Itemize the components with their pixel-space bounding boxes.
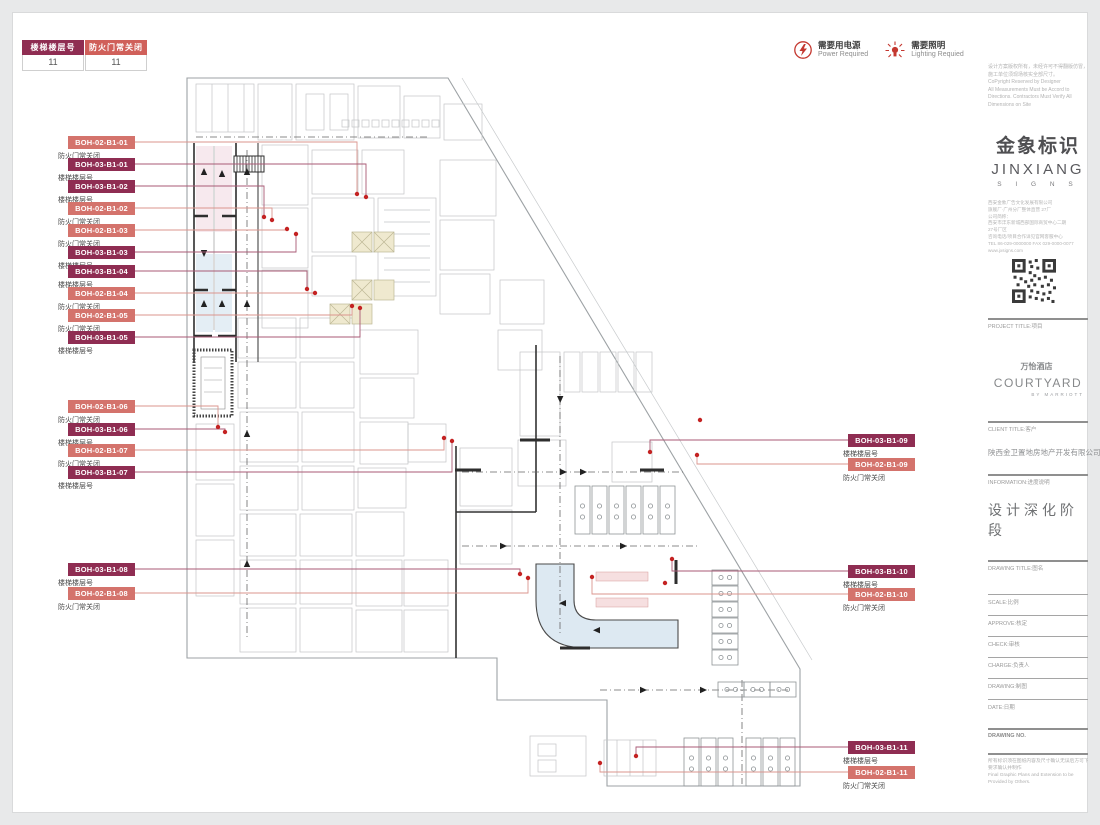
power-icon: [793, 40, 813, 60]
label-code: BOH-02-B1-08: [68, 587, 135, 600]
legend-power-en: Power Required: [818, 50, 868, 59]
label-caption: 防火门常关闭: [843, 473, 938, 483]
legend-power-zh: 需要用电源: [818, 40, 868, 50]
legend-value-stair: 11: [22, 55, 84, 71]
text-line: 旗舰厂·广州分厂整体直营 27厂: [988, 207, 1088, 214]
label-caption: 防火门常关闭: [843, 781, 938, 791]
label-code: BOH-03-B1-11: [848, 741, 915, 754]
text-line: 公司简称：: [988, 214, 1088, 221]
legend-header-door: 防火门常关闭: [85, 40, 147, 55]
label-code: BOH-03-B1-04: [68, 265, 135, 278]
label-code: BOH-03-B1-06: [68, 423, 135, 436]
text-line: Dimensions on Site: [988, 102, 1088, 110]
label-code: BOH-03-B1-02: [68, 180, 135, 193]
boh-label-boh-02-b1-08: BOH-02-B1-08防火门常关闭: [68, 587, 158, 612]
lighting-icon: [884, 40, 906, 60]
text-line: TEL 86-029-0000000 FAX 029-0000-0077: [988, 241, 1088, 248]
qr-code: [1012, 259, 1056, 303]
text-line: Directions. Contractors Must Verify All: [988, 94, 1088, 102]
text-line: 咨询电话/项目合作详见官网客服中心: [988, 234, 1088, 241]
legend-lighting: 需要照明 Lighting Requied: [884, 40, 964, 60]
design-stage: 设计深化阶段: [988, 500, 1088, 540]
text-line: 西安市沣东新城西部国际商贸中心二期: [988, 220, 1088, 227]
titleblock-fields: SCALE:比例APPROVE:核定CHECK:审核CHARGE:负责人DRAW…: [988, 594, 1088, 720]
company-logo-en: JINXIANG: [988, 161, 1088, 178]
boh-label-boh-03-b1-11: BOH-03-B1-11楼梯楼层号: [848, 741, 938, 766]
label-code: BOH-02-B1-09: [848, 458, 915, 471]
boh-label-boh-02-b1-04: BOH-02-B1-04防火门常关闭: [68, 287, 158, 312]
field-check: CHECK:审核: [988, 636, 1088, 657]
boh-label-boh-03-b1-08: BOH-03-B1-08楼梯楼层号: [68, 563, 158, 588]
label-code: BOH-03-B1-09: [848, 434, 915, 447]
project-logo-en: COURTYARD: [994, 376, 1082, 390]
text-line: Final Graphic Plans and Extension to be: [988, 772, 1088, 779]
project-title-label: PROJECT TITLE:项目: [988, 318, 1088, 330]
title-block: 设计方案版权所有，未经许可不得翻版仿冒，施工单位须现场核实全部尺寸。CoPyri…: [988, 64, 1088, 786]
text-line: CoPyright Reserved by Designer: [988, 79, 1088, 87]
label-caption: 楼梯楼层号: [58, 481, 158, 491]
field-scale: SCALE:比例: [988, 594, 1088, 615]
boh-label-boh-03-b1-09: BOH-03-B1-09楼梯楼层号: [848, 434, 938, 459]
company-logo-sub: S I G N S: [988, 181, 1088, 188]
text-line: 西安金象广告文化发展有限公司: [988, 200, 1088, 207]
label-caption: 楼梯楼层号: [58, 346, 158, 356]
label-code: BOH-03-B1-05: [68, 331, 135, 344]
boh-label-boh-02-b1-10: BOH-02-B1-10防火门常关闭: [848, 588, 938, 613]
text-line: 要求确认并制作: [988, 765, 1088, 772]
label-caption: 楼梯楼层号: [843, 449, 938, 459]
label-code: BOH-03-B1-07: [68, 466, 135, 479]
label-caption: 防火门常关闭: [843, 603, 938, 613]
boh-label-boh-03-b1-05: BOH-03-B1-05楼梯楼层号: [68, 331, 158, 356]
text-line: 施工单位须现场核实全部尺寸。: [988, 72, 1088, 80]
label-code: BOH-02-B1-02: [68, 202, 135, 215]
field-drawing: DRAWING:制图: [988, 678, 1088, 699]
text-line: All Measurements Must be Accord to: [988, 87, 1088, 95]
project-logo-sub: BY MARRIOTT: [988, 392, 1084, 397]
legend-header-stair: 楼梯楼层号: [22, 40, 84, 55]
legend-col-stair: 楼梯楼层号 11: [22, 40, 84, 71]
boh-label-boh-02-b1-02: BOH-02-B1-02防火门常关闭: [68, 202, 158, 227]
field-charge: CHARGE:负责人: [988, 657, 1088, 678]
label-code: BOH-02-B1-03: [68, 224, 135, 237]
label-code: BOH-03-B1-03: [68, 246, 135, 259]
text-line: Provided by Others.: [988, 779, 1088, 786]
text-line: 设计方案版权所有，未经许可不得翻版仿冒，: [988, 64, 1088, 72]
information-label: INFORMATION:进度说明: [988, 474, 1088, 486]
label-caption: 防火门常关闭: [58, 602, 158, 612]
label-code: BOH-02-B1-11: [848, 766, 915, 779]
legend-power: 需要用电源 Power Required: [793, 40, 868, 60]
company-info: 西安金象广告文化发展有限公司旗舰厂·广州分厂整体直营 27厂公司简称：西安市沣东…: [988, 200, 1088, 254]
boh-label-boh-03-b1-10: BOH-03-B1-10楼梯楼层号: [848, 565, 938, 590]
legend-col-door: 防火门常关闭 11: [85, 40, 147, 71]
boh-label-boh-03-b1-01: BOH-03-B1-01楼梯楼层号: [68, 158, 158, 183]
legend-value-door: 11: [85, 55, 147, 71]
legend-lighting-zh: 需要照明: [911, 40, 964, 50]
production-note: 所有标识须在图纸内容及尺寸确认无误后方可下单要求确认并制作Final Graph…: [988, 753, 1088, 786]
boh-label-boh-02-b1-09: BOH-02-B1-09防火门常关闭: [848, 458, 938, 483]
boh-label-boh-02-b1-11: BOH-02-B1-11防火门常关闭: [848, 766, 938, 791]
project-logo-zh: 万怡酒店: [1021, 361, 1053, 372]
label-code: BOH-02-B1-04: [68, 287, 135, 300]
boh-label-boh-03-b1-02: BOH-03-B1-02楼梯楼层号: [68, 180, 158, 205]
boh-label-boh-02-b1-07: BOH-02-B1-07防火门常关闭: [68, 444, 158, 469]
text-line: 27号厂区: [988, 227, 1088, 234]
text-line: 所有标识须在图纸内容及尺寸确认无误后方可下单: [988, 758, 1088, 765]
boh-label-boh-02-b1-03: BOH-02-B1-03防火门常关闭: [68, 224, 158, 249]
legend-table: 楼梯楼层号 11 防火门常关闭 11: [22, 40, 148, 71]
boh-label-boh-02-b1-05: BOH-02-B1-05防火门常关闭: [68, 309, 158, 334]
client-name: 陕西金卫置地房地产开发有限公司: [988, 447, 1088, 458]
label-caption: 楼梯楼层号: [58, 578, 158, 588]
company-logo-zh: 金象标识: [988, 131, 1088, 158]
label-code: BOH-02-B1-07: [68, 444, 135, 457]
drawing-sheet: [12, 12, 1088, 813]
copyright-note: 设计方案版权所有，未经许可不得翻版仿冒，施工单位须现场核实全部尺寸。CoPyri…: [988, 64, 1088, 109]
project-logo: 万怡酒店COURTYARD BY MARRIOTT: [988, 356, 1088, 397]
boh-label-boh-02-b1-06: BOH-02-B1-06防火门常关闭: [68, 400, 158, 425]
boh-label-boh-02-b1-01: BOH-02-B1-01防火门常关闭: [68, 136, 158, 161]
boh-label-boh-03-b1-07: BOH-03-B1-07楼梯楼层号: [68, 466, 158, 491]
drawing-title-label: DRAWING TITLE:图名: [988, 560, 1088, 572]
label-code: BOH-02-B1-01: [68, 136, 135, 149]
label-code: BOH-03-B1-08: [68, 563, 135, 576]
legend-lighting-en: Lighting Requied: [911, 50, 964, 59]
label-code: BOH-02-B1-10: [848, 588, 915, 601]
label-code: BOH-02-B1-06: [68, 400, 135, 413]
label-code: BOH-03-B1-01: [68, 158, 135, 171]
drawing-no-label: DRAWING NO.: [988, 728, 1088, 739]
icon-legend: 需要用电源 Power Required 需要照明 Lighting Requi…: [793, 40, 964, 60]
field-approve: APPROVE:核定: [988, 615, 1088, 636]
client-title-label: CLIENT TITLE:客户: [988, 421, 1088, 433]
label-code: BOH-02-B1-05: [68, 309, 135, 322]
boh-label-boh-03-b1-04: BOH-03-B1-04楼梯楼层号: [68, 265, 158, 290]
field-date: DATE:日期: [988, 699, 1088, 720]
label-caption: 楼梯楼层号: [843, 756, 938, 766]
text-line: www.jxsigns.com: [988, 248, 1088, 255]
label-code: BOH-03-B1-10: [848, 565, 915, 578]
